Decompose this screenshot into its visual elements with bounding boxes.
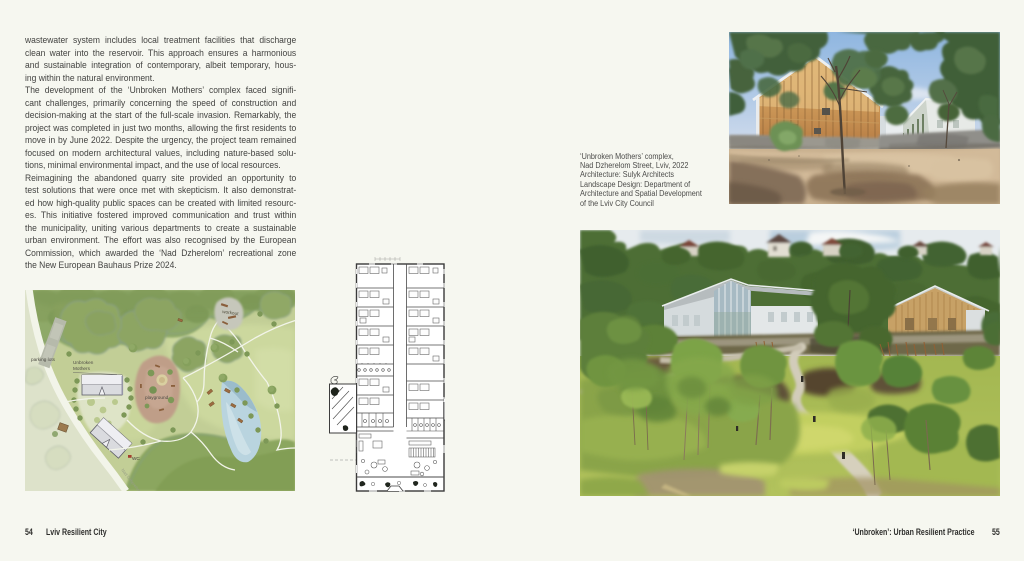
- svg-text:WC: WC: [132, 456, 140, 461]
- svg-text:Unbroken: Unbroken: [73, 360, 94, 365]
- svg-text:playground: playground: [145, 395, 169, 400]
- svg-text:Mothers: Mothers: [73, 366, 91, 371]
- svg-text:parking lots: parking lots: [31, 357, 56, 362]
